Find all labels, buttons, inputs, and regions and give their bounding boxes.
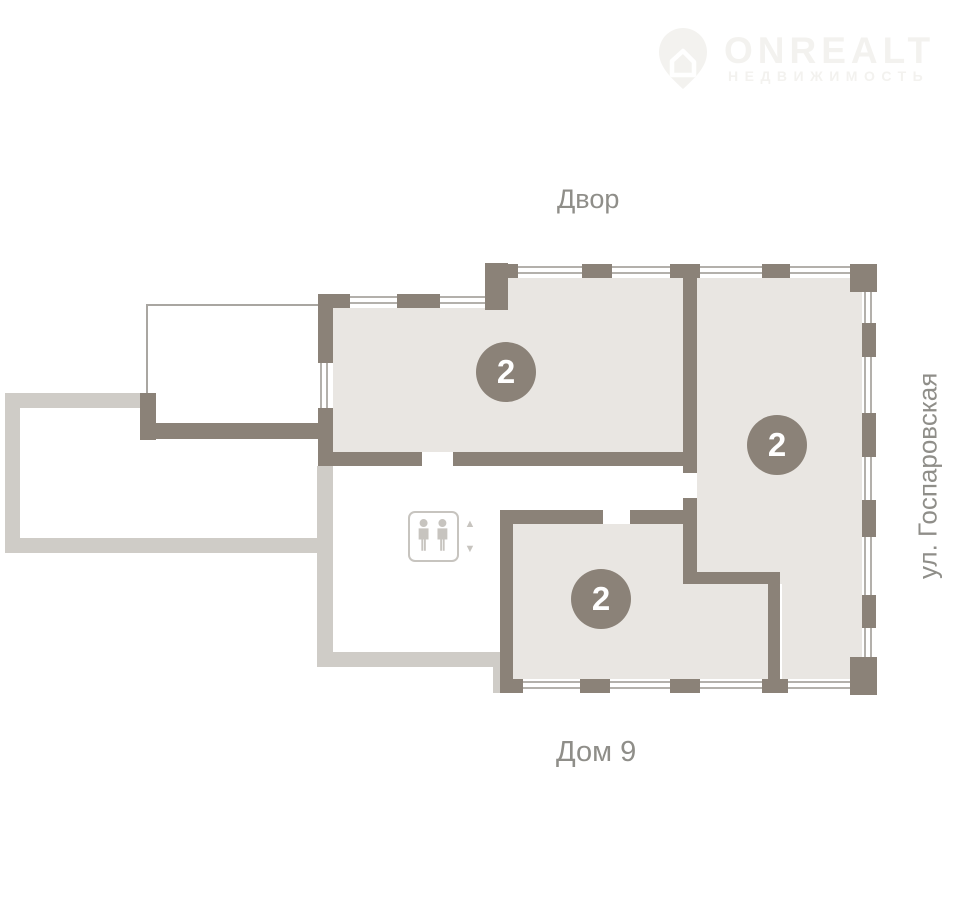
wall-segment <box>140 423 333 439</box>
wall-segment <box>683 572 780 584</box>
room-badge-label: 2 <box>497 353 515 391</box>
floorplan-page: ONREALT НЕДВИЖИМОСТЬ Двор Дом 9 ул. Госп… <box>0 0 960 910</box>
wall-segment <box>318 452 422 466</box>
window <box>864 457 872 500</box>
wall-segment <box>862 323 876 357</box>
wall-segment <box>397 294 440 308</box>
room-1-area[interactable] <box>508 278 683 308</box>
wall-segment <box>683 278 697 473</box>
wall-segment <box>582 264 612 278</box>
wall-segment <box>850 657 877 695</box>
room-badge-label: 2 <box>768 426 786 464</box>
outer-wall-light <box>317 652 500 667</box>
window <box>350 296 397 304</box>
window <box>700 681 762 689</box>
window <box>864 537 872 595</box>
window <box>864 357 872 413</box>
balcony-rail <box>146 304 148 396</box>
wall-segment <box>580 679 610 693</box>
elevator-icon <box>413 517 453 555</box>
elevator-indicator <box>408 511 459 562</box>
terrace-wall <box>5 393 140 408</box>
elevator-arrows: ▲ ▼ <box>461 519 479 555</box>
arrow-up-icon: ▲ <box>465 519 476 530</box>
outer-wall-light <box>317 466 333 667</box>
window <box>610 681 670 689</box>
room-3-area[interactable] <box>683 584 768 679</box>
floor-plan: 2 2 2 ▲ ▼ <box>0 0 960 910</box>
room-badge-label: 2 <box>592 580 610 618</box>
wall-segment <box>862 500 876 537</box>
terrace-wall <box>5 538 317 553</box>
wall-segment <box>500 510 513 693</box>
window <box>790 266 850 274</box>
window <box>700 266 762 274</box>
room-badge-1[interactable]: 2 <box>476 342 536 402</box>
wall-segment <box>670 679 700 693</box>
balcony-rail <box>146 304 318 306</box>
wall-segment <box>670 264 700 278</box>
window <box>518 266 582 274</box>
wall-segment <box>318 294 333 363</box>
window <box>523 681 580 689</box>
wall-segment <box>630 510 697 524</box>
terrace-wall <box>5 393 20 553</box>
window <box>788 681 850 689</box>
window <box>864 292 872 323</box>
wall-segment <box>862 413 876 457</box>
wall-segment <box>453 452 683 466</box>
wall-segment <box>485 263 508 310</box>
wall-segment <box>762 264 790 278</box>
window <box>864 628 872 657</box>
wall-segment <box>768 572 780 679</box>
arrow-down-icon: ▼ <box>465 544 476 555</box>
wall-segment <box>862 595 876 628</box>
wall-segment <box>500 510 603 524</box>
window <box>612 266 670 274</box>
room-badge-3[interactable]: 2 <box>571 569 631 629</box>
room-badge-2[interactable]: 2 <box>747 415 807 475</box>
wall-segment <box>850 264 877 292</box>
window <box>320 363 328 410</box>
wall-segment <box>762 679 788 693</box>
window <box>440 296 485 304</box>
